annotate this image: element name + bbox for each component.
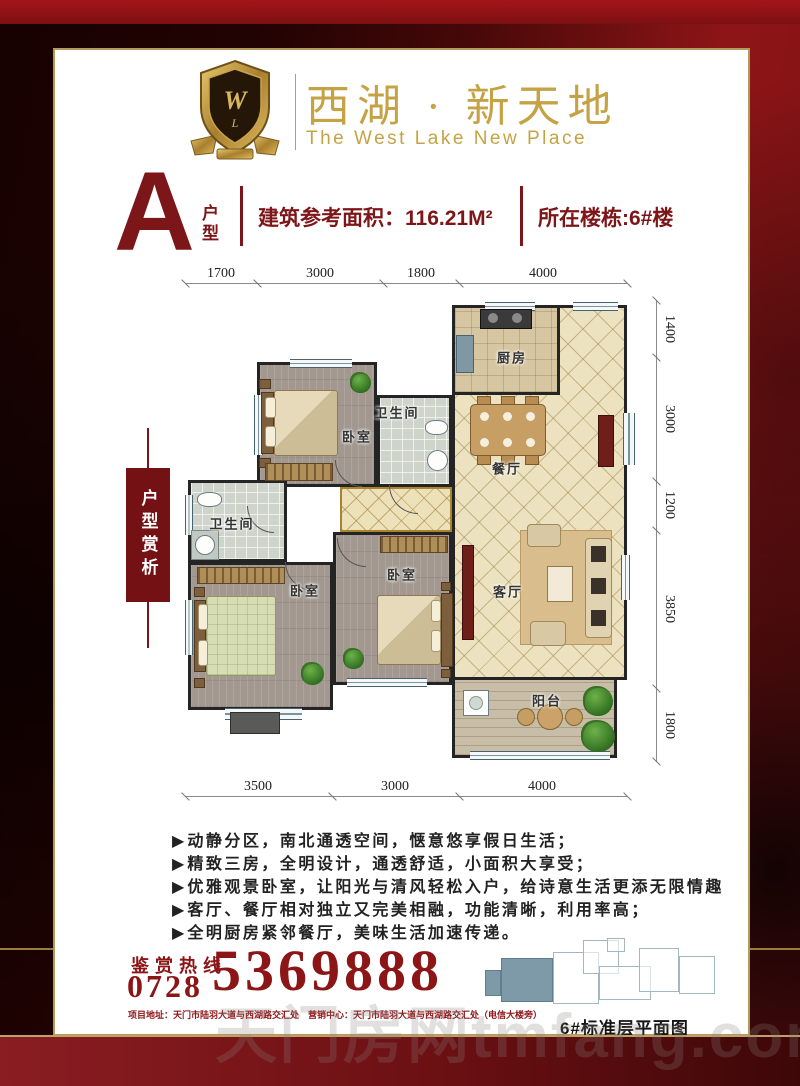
dim-label: 3000 [381,779,409,795]
dining-chair [525,455,539,465]
window [573,302,618,311]
feature-item: ▶优雅观景卧室，让阳光与清风轻松入户，给诗意生活更添无限情趣 [172,876,737,899]
decor-top-red-strip [0,0,800,24]
wardrobe [197,567,285,584]
stove-burner [488,313,498,323]
unit-type-letter: A [114,156,195,268]
dim-label: 4000 [528,779,556,795]
brand-logo: W L [183,57,287,163]
nightstand [194,587,205,597]
dim-label: 1700 [207,266,235,282]
feature-item: ▶客厅、餐厅相对独立又完美相融，功能清晰，利用率高； [172,899,737,922]
sideboard-cabinet [598,415,614,467]
info-divider-2 [520,186,523,246]
plant [581,720,615,752]
room-label-bedroom-1: 卧室 [342,427,372,446]
pillow [198,640,208,666]
balcony-railing-window [470,751,610,760]
armchair [530,621,566,646]
dimension-right: 1400 3000 1200 3850 1800 [648,300,678,762]
dining-chair [477,455,491,465]
room-label-bedroom-3: 卧室 [290,581,320,600]
bullet-icon: ▶ [172,902,184,919]
dim-label: 3000 [661,405,677,433]
dimension-top: 1700 3000 1800 4000 [185,270,627,286]
stove-burner [512,313,522,323]
bullet-icon: ▶ [172,856,184,873]
side-tab-label: 户型赏析 [136,489,161,581]
watermark-text: 天门房网tmfang.com [215,985,800,1075]
console-cabinet [462,545,474,640]
bay-window [623,413,635,465]
plant [301,662,324,685]
sofa-cushion [591,546,606,562]
decor-gold-pinstripe-left [0,948,53,950]
dim-label: 3000 [306,266,334,282]
window [290,359,352,368]
decor-gold-pinstripe-right [748,948,800,950]
dresser [230,712,280,734]
dim-label: 4000 [529,266,557,282]
dim-label: 1400 [661,315,677,343]
brand-title: 西湖 · 新天地 [306,70,619,134]
pillow [198,604,208,630]
sofa-cushion [591,578,606,594]
dim-label: 1800 [407,266,435,282]
hotline-area-code: 0728 [127,968,203,1005]
brand-subtitle: The West Lake New Place [306,128,587,150]
room-label-bath-2: 卫生间 [209,514,254,533]
armchair [527,524,561,547]
plate [503,438,512,447]
bed [206,596,276,676]
sink [427,450,448,471]
pillow [431,630,441,652]
bullet-icon: ▶ [172,925,184,942]
pillow [431,600,441,622]
window [621,555,630,600]
building-outline [607,938,625,952]
balcony-chair [565,708,583,726]
plate [480,438,489,447]
side-tab: 户型赏析 [126,468,170,602]
dimension-bottom: 3500 3000 4000 [185,781,627,799]
nightstand [259,379,271,389]
dim-line [185,796,627,797]
dim-label: 1200 [661,491,677,519]
plant [350,372,371,393]
room-label-living: 客厅 [493,582,523,601]
info-divider-1 [240,186,243,246]
washing-machine-drum [469,696,483,710]
coffee-table [547,566,573,602]
wardrobe [265,463,333,481]
plate [503,412,512,421]
dim-line [185,283,627,284]
balcony-chair [517,708,535,726]
feature-list: ▶动静分区，南北通透空间，惬意悠享假日生活； ▶精致三房，全明设计，通透舒适，小… [172,830,737,945]
unit-area-text: 建筑参考面积：116.21M² [258,202,493,232]
plant [583,686,613,716]
window [185,600,193,655]
kitchen-sink [456,335,474,373]
bed [274,390,338,456]
pillow [265,426,276,447]
feature-item: ▶精致三房，全明设计，通透舒适，小面积大享受； [172,853,737,876]
sofa-cushion [591,610,606,626]
nightstand [194,678,205,688]
unit-type-label: 户型 [196,204,221,244]
bed-headboard [441,593,453,667]
window [347,678,427,687]
room-label-bedroom-2: 卧室 [387,565,417,584]
svg-text:W: W [223,86,248,115]
pillow [265,397,276,418]
toilet [197,492,222,507]
dim-label: 3500 [244,779,272,795]
unit-building-text: 所在楼栋:6#楼 [538,202,673,232]
room-label-balcony: 阳台 [532,691,562,710]
toilet [425,420,448,435]
floor-plan: 厨房 餐厅 客厅 阳台 卧室 卧室 卧室 卫生间 卫生间 [185,300,627,770]
svg-text:L: L [231,116,239,130]
dim-label: 1800 [661,711,677,739]
plate [526,438,535,447]
sink [195,535,215,555]
feature-item: ▶动静分区，南北通透空间，惬意悠享假日生活； [172,830,737,853]
bullet-icon: ▶ [172,833,184,850]
plant [343,648,364,669]
gold-shield-crest-icon: W L [183,57,287,163]
plate [480,412,489,421]
window [185,495,193,535]
dim-label: 3850 [661,595,677,623]
bullet-icon: ▶ [172,879,184,896]
room-label-dining: 餐厅 [492,459,522,478]
plate [526,412,535,421]
wardrobe [380,536,448,553]
nightstand [441,582,451,591]
header-divider [295,74,296,150]
nightstand [441,669,451,678]
room-label-bath-1: 卫生间 [374,403,419,422]
room-label-kitchen: 厨房 [497,348,527,367]
